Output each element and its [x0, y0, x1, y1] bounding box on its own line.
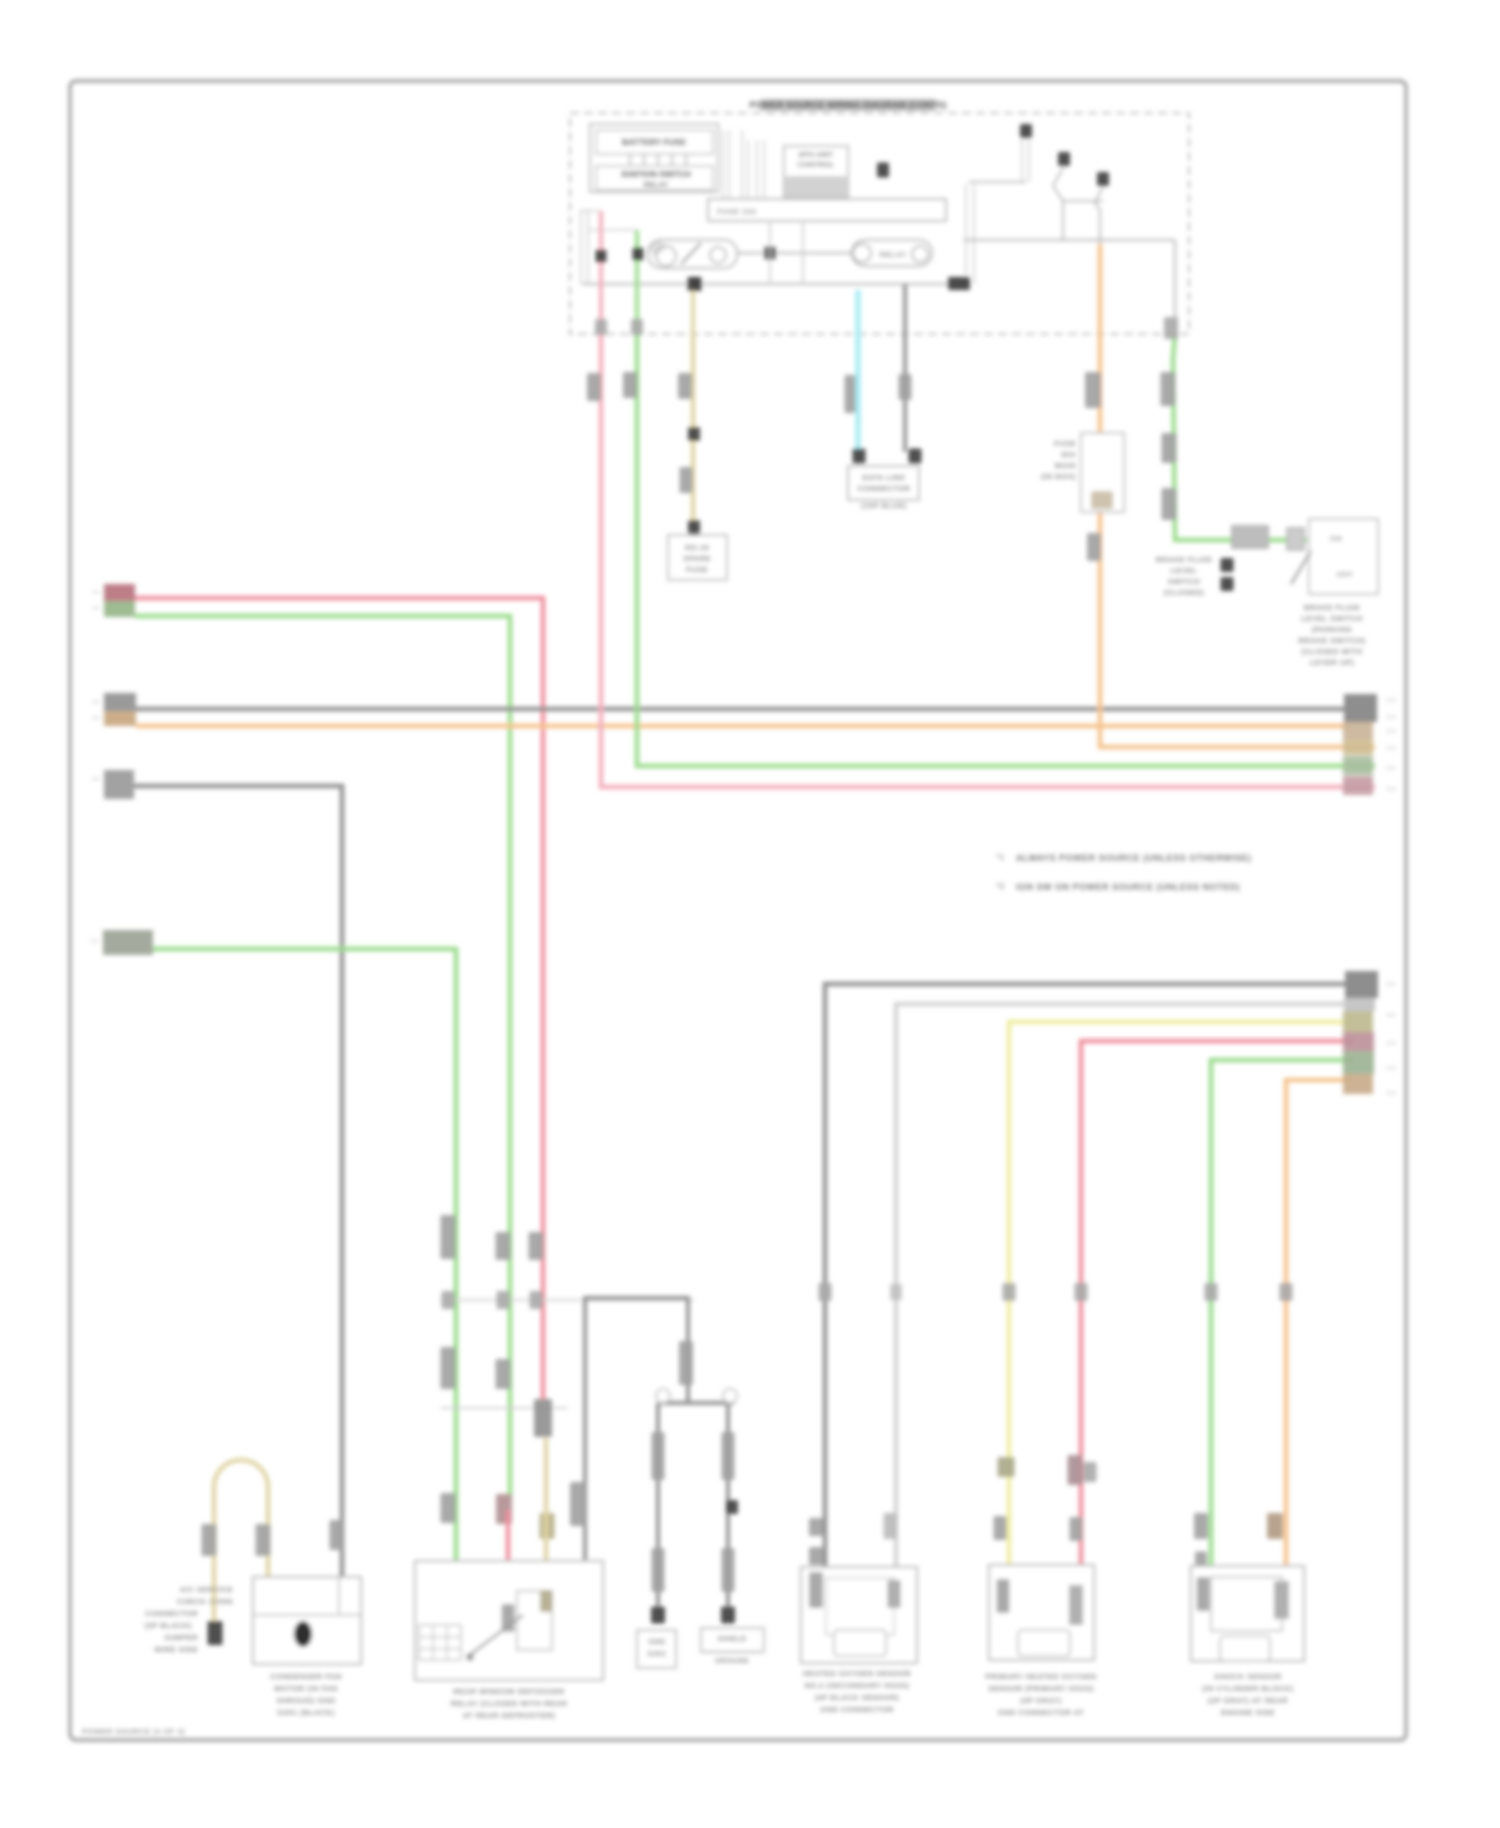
- svg-text:RELAY (CLOSED WITH REAR: RELAY (CLOSED WITH REAR: [451, 1699, 568, 1708]
- svg-text:*1: *1: [996, 853, 1005, 862]
- svg-text:RELAY: RELAY: [879, 250, 906, 259]
- svg-text:ON: ON: [1330, 534, 1342, 543]
- svg-text:IGN SW ON POWER SOURCE (UNLES: IGN SW ON POWER SOURCE (UNLESS NOTED): [1016, 882, 1240, 892]
- svg-text:POWER SOURCE WIRING DIAGRAM (C: POWER SOURCE WIRING DIAGRAM (CONTD): [750, 100, 947, 110]
- svg-text:(CLOSED): (CLOSED): [1164, 588, 1204, 597]
- svg-text:CONDENSER FAN: CONDENSER FAN: [270, 1672, 342, 1681]
- svg-text:CHECK CONN: CHECK CONN: [177, 1597, 233, 1606]
- svg-text:FUSE 15A: FUSE 15A: [717, 207, 757, 216]
- svg-text:GROUND: GROUND: [715, 1658, 749, 1665]
- svg-text:DATA LINK: DATA LINK: [862, 473, 906, 482]
- svg-text:LEVEL SWITCH: LEVEL SWITCH: [1301, 614, 1363, 623]
- svg-text:FUSE: FUSE: [1054, 439, 1076, 448]
- svg-text:(16P BLUE): (16P BLUE): [861, 501, 907, 510]
- svg-text:AT REAR DEFROSTER): AT REAR DEFROSTER): [463, 1711, 556, 1720]
- svg-text:FUSE: FUSE: [686, 565, 708, 574]
- svg-text:*2: *2: [996, 882, 1005, 891]
- svg-text:BRAKE FLUID: BRAKE FLUID: [1304, 603, 1360, 612]
- svg-text:(PARKING: (PARKING: [1312, 625, 1353, 634]
- svg-text:LEVEL: LEVEL: [1171, 566, 1198, 575]
- svg-text:HEATED OXYGEN SENSOR: HEATED OXYGEN SENSOR: [803, 1669, 911, 1678]
- svg-text:(IN BOX): (IN BOX): [1041, 472, 1076, 481]
- svg-text:PRIMARY HEATED OXYGEN: PRIMARY HEATED OXYGEN: [985, 1672, 1096, 1681]
- svg-text:JUMPER: JUMPER: [164, 1633, 198, 1642]
- svg-text:KNOCK SENSOR: KNOCK SENSOR: [1214, 1672, 1281, 1681]
- svg-text:LEVER UP): LEVER UP): [1310, 658, 1355, 667]
- svg-text:BRAKE SWITCH): BRAKE SWITCH): [1298, 636, 1365, 645]
- svg-text:CONNECTOR: CONNECTOR: [858, 484, 911, 493]
- svg-text:NO.18: NO.18: [685, 543, 709, 552]
- svg-text:(2P GRAY) AT REAR: (2P GRAY) AT REAR: [1208, 1696, 1288, 1705]
- svg-text:(CLOSED WITH: (CLOSED WITH: [1302, 647, 1363, 656]
- svg-text:BRAKE FLUID: BRAKE FLUID: [1156, 555, 1212, 564]
- svg-text:RELAY: RELAY: [644, 180, 669, 189]
- svg-text:OFF: OFF: [1337, 570, 1354, 579]
- svg-text:GND: GND: [648, 1639, 665, 1646]
- svg-text:SHROUD) GND: SHROUD) GND: [276, 1696, 335, 1705]
- svg-text:GND CONNECTOR AT: GND CONNECTOR AT: [998, 1708, 1084, 1717]
- svg-text:ENGINE SIDE: ENGINE SIDE: [1221, 1708, 1275, 1717]
- svg-text:(2P BLACK): (2P BLACK): [145, 1621, 192, 1630]
- svg-text:IGNITION SWITCH: IGNITION SWITCH: [621, 170, 691, 179]
- svg-text:A/C SERVICE: A/C SERVICE: [180, 1585, 233, 1594]
- svg-text:EPS UNIT: EPS UNIT: [799, 150, 834, 159]
- svg-text:CONTROL: CONTROL: [797, 160, 834, 169]
- svg-text:(4P GRAY): (4P GRAY): [1020, 1696, 1062, 1705]
- svg-text:REAR WINDOW DEFOGGER: REAR WINDOW DEFOGGER: [453, 1687, 564, 1696]
- svg-text:G301: G301: [647, 1651, 666, 1658]
- svg-text:SWITCH: SWITCH: [1168, 577, 1201, 586]
- svg-text:BATTERY FUSE: BATTERY FUSE: [622, 137, 686, 147]
- svg-text:(IN CYLINDER BLOCK): (IN CYLINDER BLOCK): [1202, 1684, 1293, 1693]
- svg-text:MOTOR (IN FAN: MOTOR (IN FAN: [274, 1684, 337, 1693]
- svg-text:NO.2 (SECONDARY HO2S): NO.2 (SECONDARY HO2S): [804, 1681, 909, 1690]
- svg-text:SPARE: SPARE: [683, 554, 711, 563]
- svg-text:SHIELD: SHIELD: [718, 1636, 747, 1643]
- svg-text:WIRE SIDE: WIRE SIDE: [154, 1645, 198, 1654]
- svg-text:GND CONNECTOR: GND CONNECTOR: [820, 1705, 894, 1714]
- svg-text:SENSOR (PRIMARY HO2S): SENSOR (PRIMARY HO2S): [988, 1684, 1094, 1693]
- svg-text:CONNECTOR: CONNECTOR: [145, 1609, 198, 1618]
- svg-text:30A: 30A: [1061, 450, 1076, 459]
- svg-text:(4P BLACK SENSOR): (4P BLACK SENSOR): [815, 1693, 900, 1702]
- svg-text:MAIN: MAIN: [1055, 461, 1076, 470]
- svg-text:ALWAYS POWER SOURCE (UNLESS O: ALWAYS POWER SOURCE (UNLESS OTHERWISE): [1016, 853, 1252, 863]
- svg-text:G201 (BLACK): G201 (BLACK): [277, 1708, 335, 1717]
- svg-text:POWER SOURCE (4 OF 4): POWER SOURCE (4 OF 4): [82, 1727, 185, 1736]
